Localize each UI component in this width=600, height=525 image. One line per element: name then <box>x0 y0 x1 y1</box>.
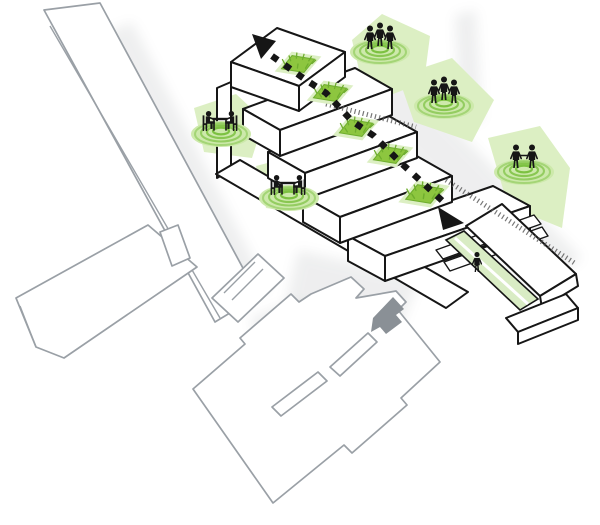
concept-diagram <box>0 0 600 525</box>
concept-diagram-canvas <box>0 0 600 525</box>
